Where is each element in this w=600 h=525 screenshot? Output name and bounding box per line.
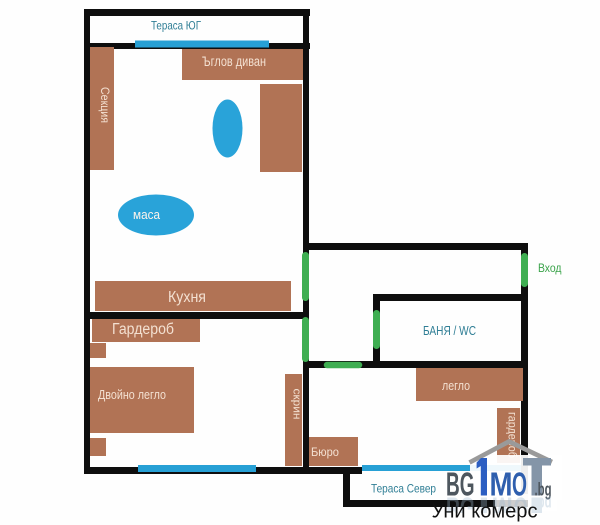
svg-text:Тераса ЮГ: Тераса ЮГ [151,19,201,33]
svg-text:Тераса Север: Тераса Север [371,482,436,496]
svg-text:БАНЯ / WC: БАНЯ / WC [423,324,476,338]
svg-text:скрин: скрин [291,389,303,420]
svg-text:Секция: Секция [98,87,110,123]
svg-text:легло: легло [442,379,470,393]
svg-text:маса: маса [133,208,160,222]
svg-text:Ъглов диван: Ъглов диван [202,54,266,69]
svg-text:Двойно легло: Двойно легло [98,387,166,402]
svg-text:Уни комерс: Уни комерс [432,500,538,523]
svg-text:Гардероб: Гардероб [112,321,174,338]
svg-text:Вход: Вход [538,261,562,275]
svg-text:гардероб: гардероб [506,412,518,458]
svg-text:Бюро: Бюро [311,445,339,459]
svg-text:Кухня: Кухня [168,289,206,306]
